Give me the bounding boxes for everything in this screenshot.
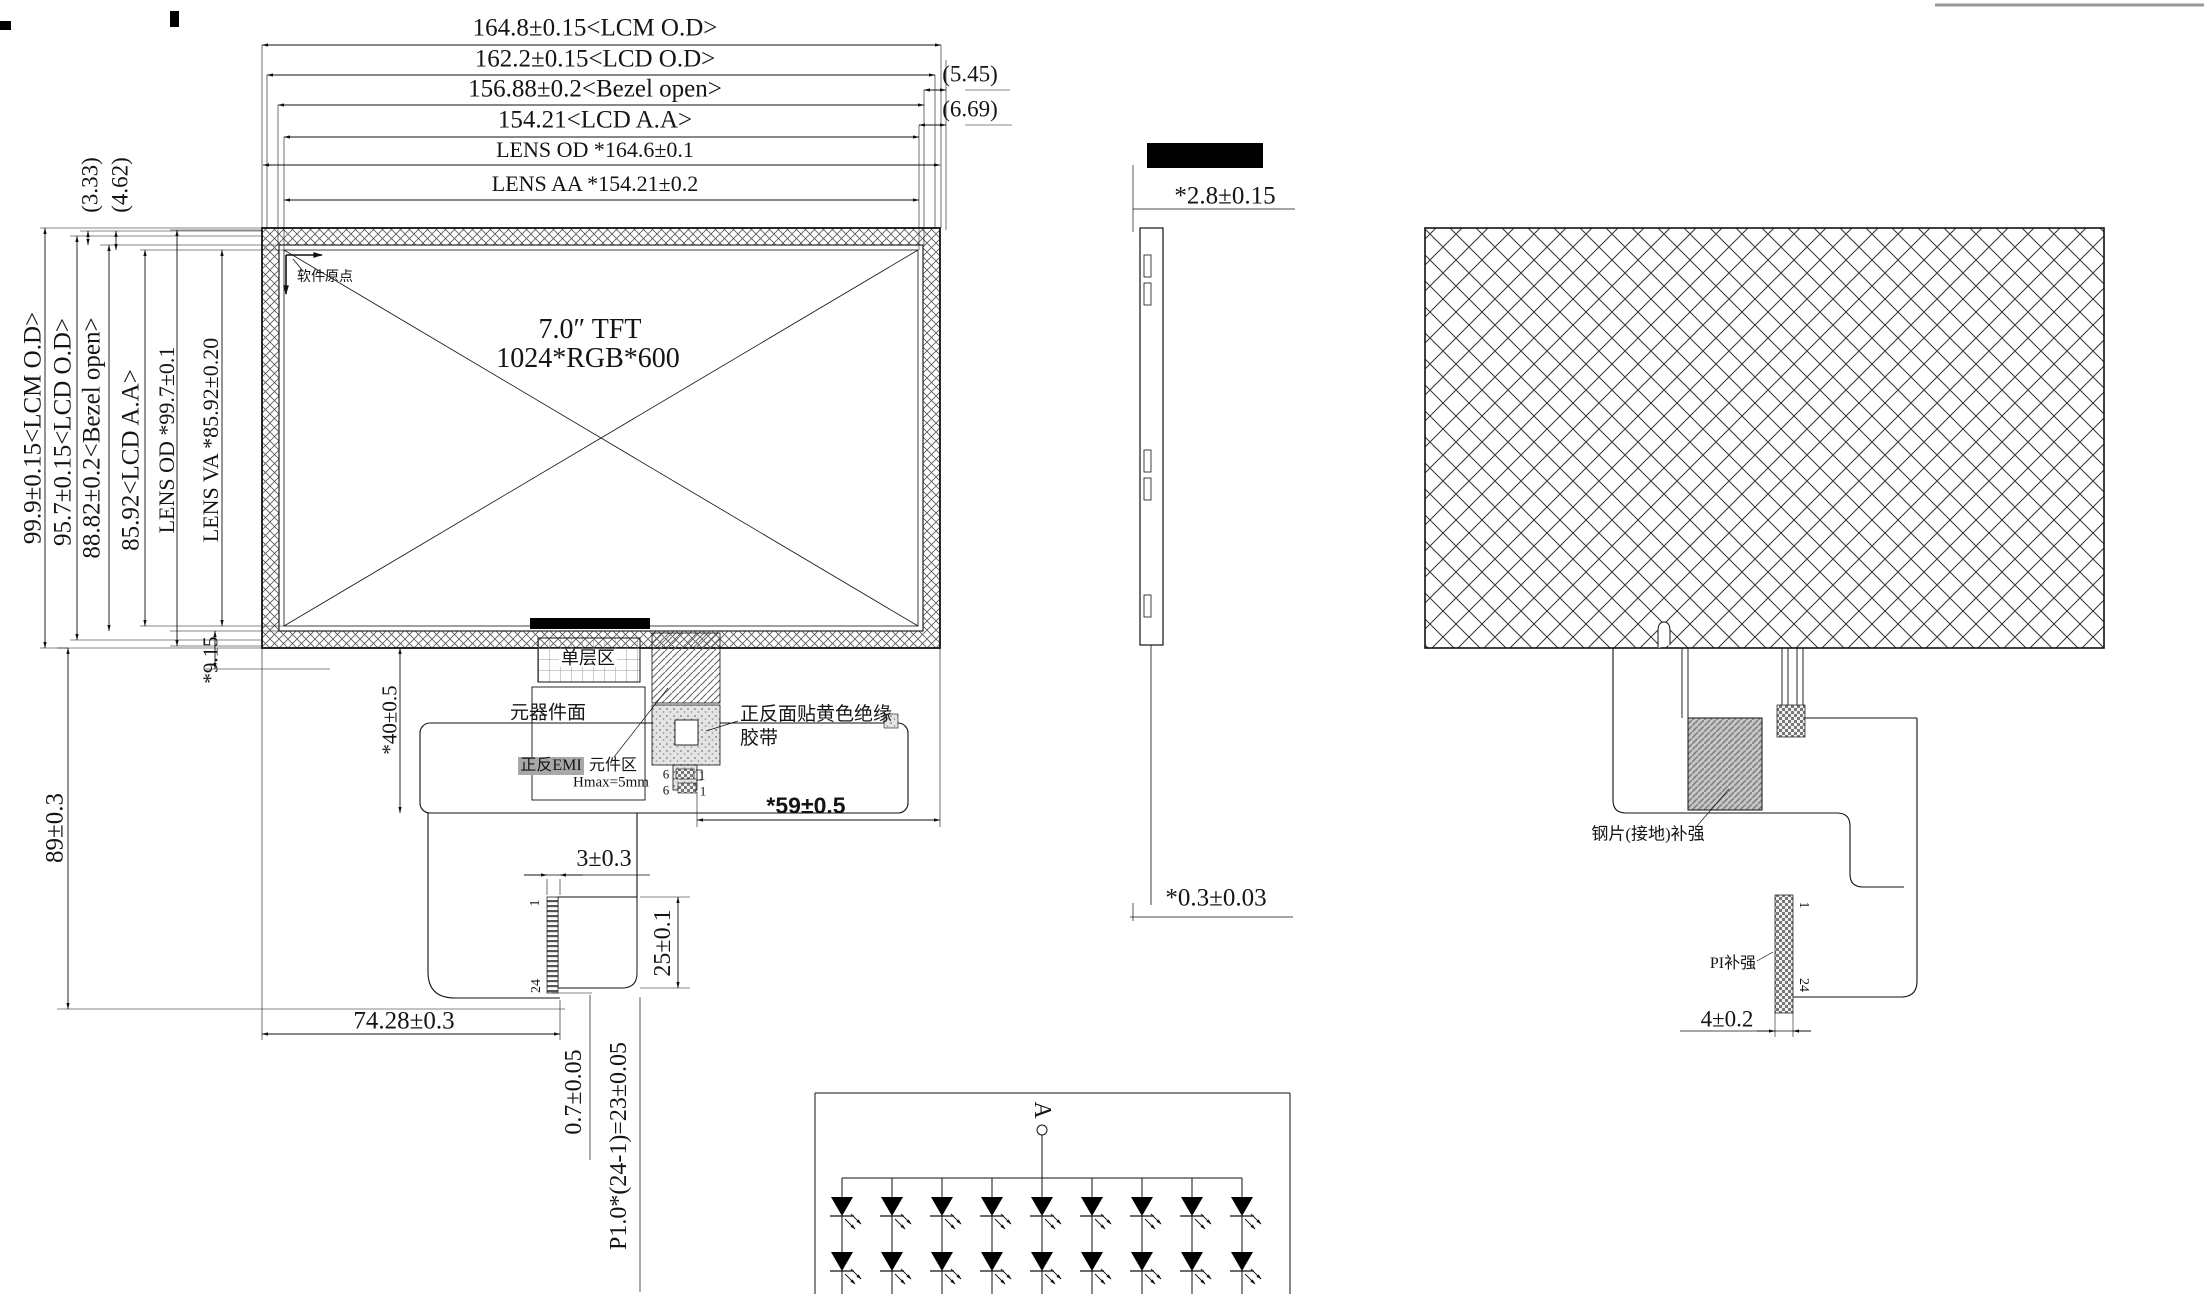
drawing-linework [0,0,2204,1294]
dim-lens-od-v: LENS OD *99.7±0.1 [156,347,178,534]
dim-pitch: 0.7±0.05 [562,1049,586,1134]
back-pin-last: 24 [1796,978,1810,992]
panel-size-label: 7.0″ TFT [539,316,642,344]
dim-contact-len: 25±0.1 [651,909,675,976]
back-pin-first: 1 [1796,902,1810,909]
panel-resolution-label: 1024*RGB*600 [496,345,680,373]
single-layer-label: 单层区 [559,649,617,667]
anode-label: A [1030,1101,1054,1118]
dim-offset-333: (3.33) [79,157,102,213]
dim-tail-offset: *59±0.5 [766,795,845,818]
dim-lens-va-v: LENS VA *85.92±0.20 [200,338,222,542]
pi-reinforce-label: PI补强 [1710,956,1756,972]
front-view [40,45,1012,1292]
tape-label-line2: 胶带 [740,729,778,748]
steel-reinforce-label: 钢片(接地)补强 [1591,826,1704,843]
dim-fpc-thickness: *0.3±0.03 [1165,886,1266,911]
dim-fpc-width: 3±0.3 [576,847,631,871]
backlight-circuit [815,1093,1290,1294]
back-view [1425,228,2104,1037]
dim-pi-tail-width: 4±0.2 [1701,1008,1754,1031]
connector-pin-6b: 6 [663,784,670,797]
dim-lcd-od-v: 95.7±0.15<LCD O.D> [51,318,76,546]
fpc-pin-last: 24 [530,979,544,993]
dim-thickness: *2.8±0.15 [1174,184,1275,209]
led-array [830,1178,1261,1294]
dim-lens-aa-h: LENS AA *154.21±0.2 [492,173,698,195]
dim-lcd-aa-v: 85.92<LCD A.A> [119,369,144,551]
fpc-pin-first: 1 [529,900,543,907]
origin-label: 软件原点 [297,271,353,285]
component-area-label: 元件区 [589,758,637,774]
dim-total-height: 89±0.3 [43,793,68,863]
tape-label-line1: 正反面贴黄色绝缘 [740,705,892,724]
dim-lcm-od-v: 99.9±0.15<LCM O.D> [21,312,46,544]
dim-fpc-offset: 74.28±0.3 [353,1009,454,1034]
dim-comp-height: *40±0.5 [380,685,401,754]
connector-pin-6a: 6 [663,768,670,781]
component-side-label: 元器件面 [510,704,586,723]
dim-lcd-aa-h: 154.21<LCD A.A> [498,108,692,133]
dim-bezel-open-h: 156.88±0.2<Bezel open> [468,77,722,102]
dim-lens-od-h: LENS OD *164.6±0.1 [496,139,694,161]
dim-offset-669: (6.69) [942,98,998,121]
dim-total-pitch: P1.0*(24-1)=23±0.05 [607,1042,631,1250]
dim-bezel-open-v: 88.82±0.2<Bezel open> [80,317,105,558]
hmax-label: Hmax=5mm [573,776,649,791]
frame-marks [0,5,2204,30]
connector-pin-1a: 1 [699,769,706,782]
dim-lcd-od-h: 162.2±0.15<LCD O.D> [475,47,716,72]
connector-pin-1b: 1 [700,785,707,798]
dim-offset-545: (5.45) [942,63,998,86]
dim-offset-462: (4.62) [109,157,132,213]
emi-label: 正反EMI [520,758,581,774]
side-view [1130,143,1295,921]
dim-step-915: *9.15 [201,636,222,683]
drawing-sheet: 164.8±0.15<LCM O.D> 162.2±0.15<LCD O.D> … [0,0,2204,1294]
dim-lcm-od-h: 164.8±0.15<LCM O.D> [473,16,718,41]
